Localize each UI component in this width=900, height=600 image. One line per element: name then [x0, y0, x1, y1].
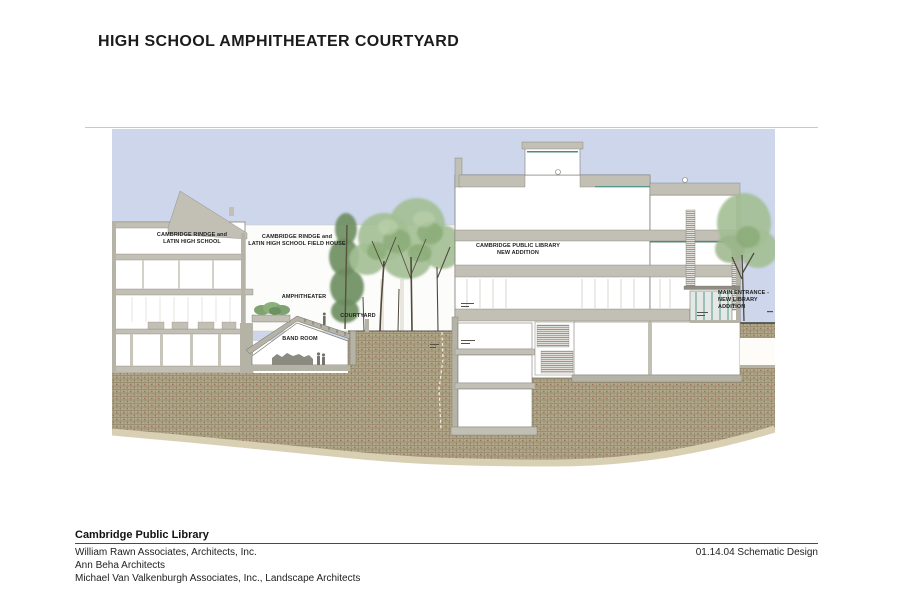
footer-rule — [75, 543, 818, 544]
roof-vent — [683, 178, 688, 183]
presentation-sheet: HIGH SCHOOL AMPHITHEATER COURTYARD — [0, 0, 900, 600]
footer-firm-3: Michael Van Valkenburgh Associates, Inc.… — [75, 573, 360, 584]
drawing-top-rule — [85, 127, 818, 128]
stair-section — [535, 322, 575, 375]
section-drawing: CAMBRIDGE RINDGE and LATIN HIGH SCHOOL C… — [112, 129, 775, 470]
footer-date-phase: 01.14.04 Schematic Design — [696, 547, 818, 558]
footer-firm-1: William Rawn Associates, Architects, Inc… — [75, 547, 257, 558]
page-title: HIGH SCHOOL AMPHITHEATER COURTYARD — [98, 33, 459, 51]
label-library-addition: CAMBRIDGE PUBLIC LIBRARY NEW ADDITION — [458, 243, 578, 257]
courtyard-wall — [350, 331, 356, 365]
label-amphitheater: AMPHITHEATER — [264, 294, 344, 301]
label-main-entrance: MAIN ENTRANCE - NEW LIBRARY ADDITION — [718, 290, 776, 311]
label-courtyard: COURTYARD — [318, 313, 398, 320]
roof-monitor — [522, 142, 583, 175]
footer-project-name: Cambridge Public Library — [75, 529, 209, 541]
curtain-wall-panel — [686, 210, 695, 286]
basement-levels — [451, 317, 537, 435]
footer-firm-2: Ann Beha Architects — [75, 560, 165, 571]
section-drawing-canvas — [112, 129, 775, 470]
label-band-room: BAND ROOM — [260, 336, 340, 343]
roof-vent — [556, 170, 561, 175]
label-field-house: CAMBRIDGE RINDGE and LATIN HIGH SCHOOL F… — [237, 234, 357, 248]
label-high-school: CAMBRIDGE RINDGE and LATIN HIGH SCHOOL — [142, 232, 242, 246]
